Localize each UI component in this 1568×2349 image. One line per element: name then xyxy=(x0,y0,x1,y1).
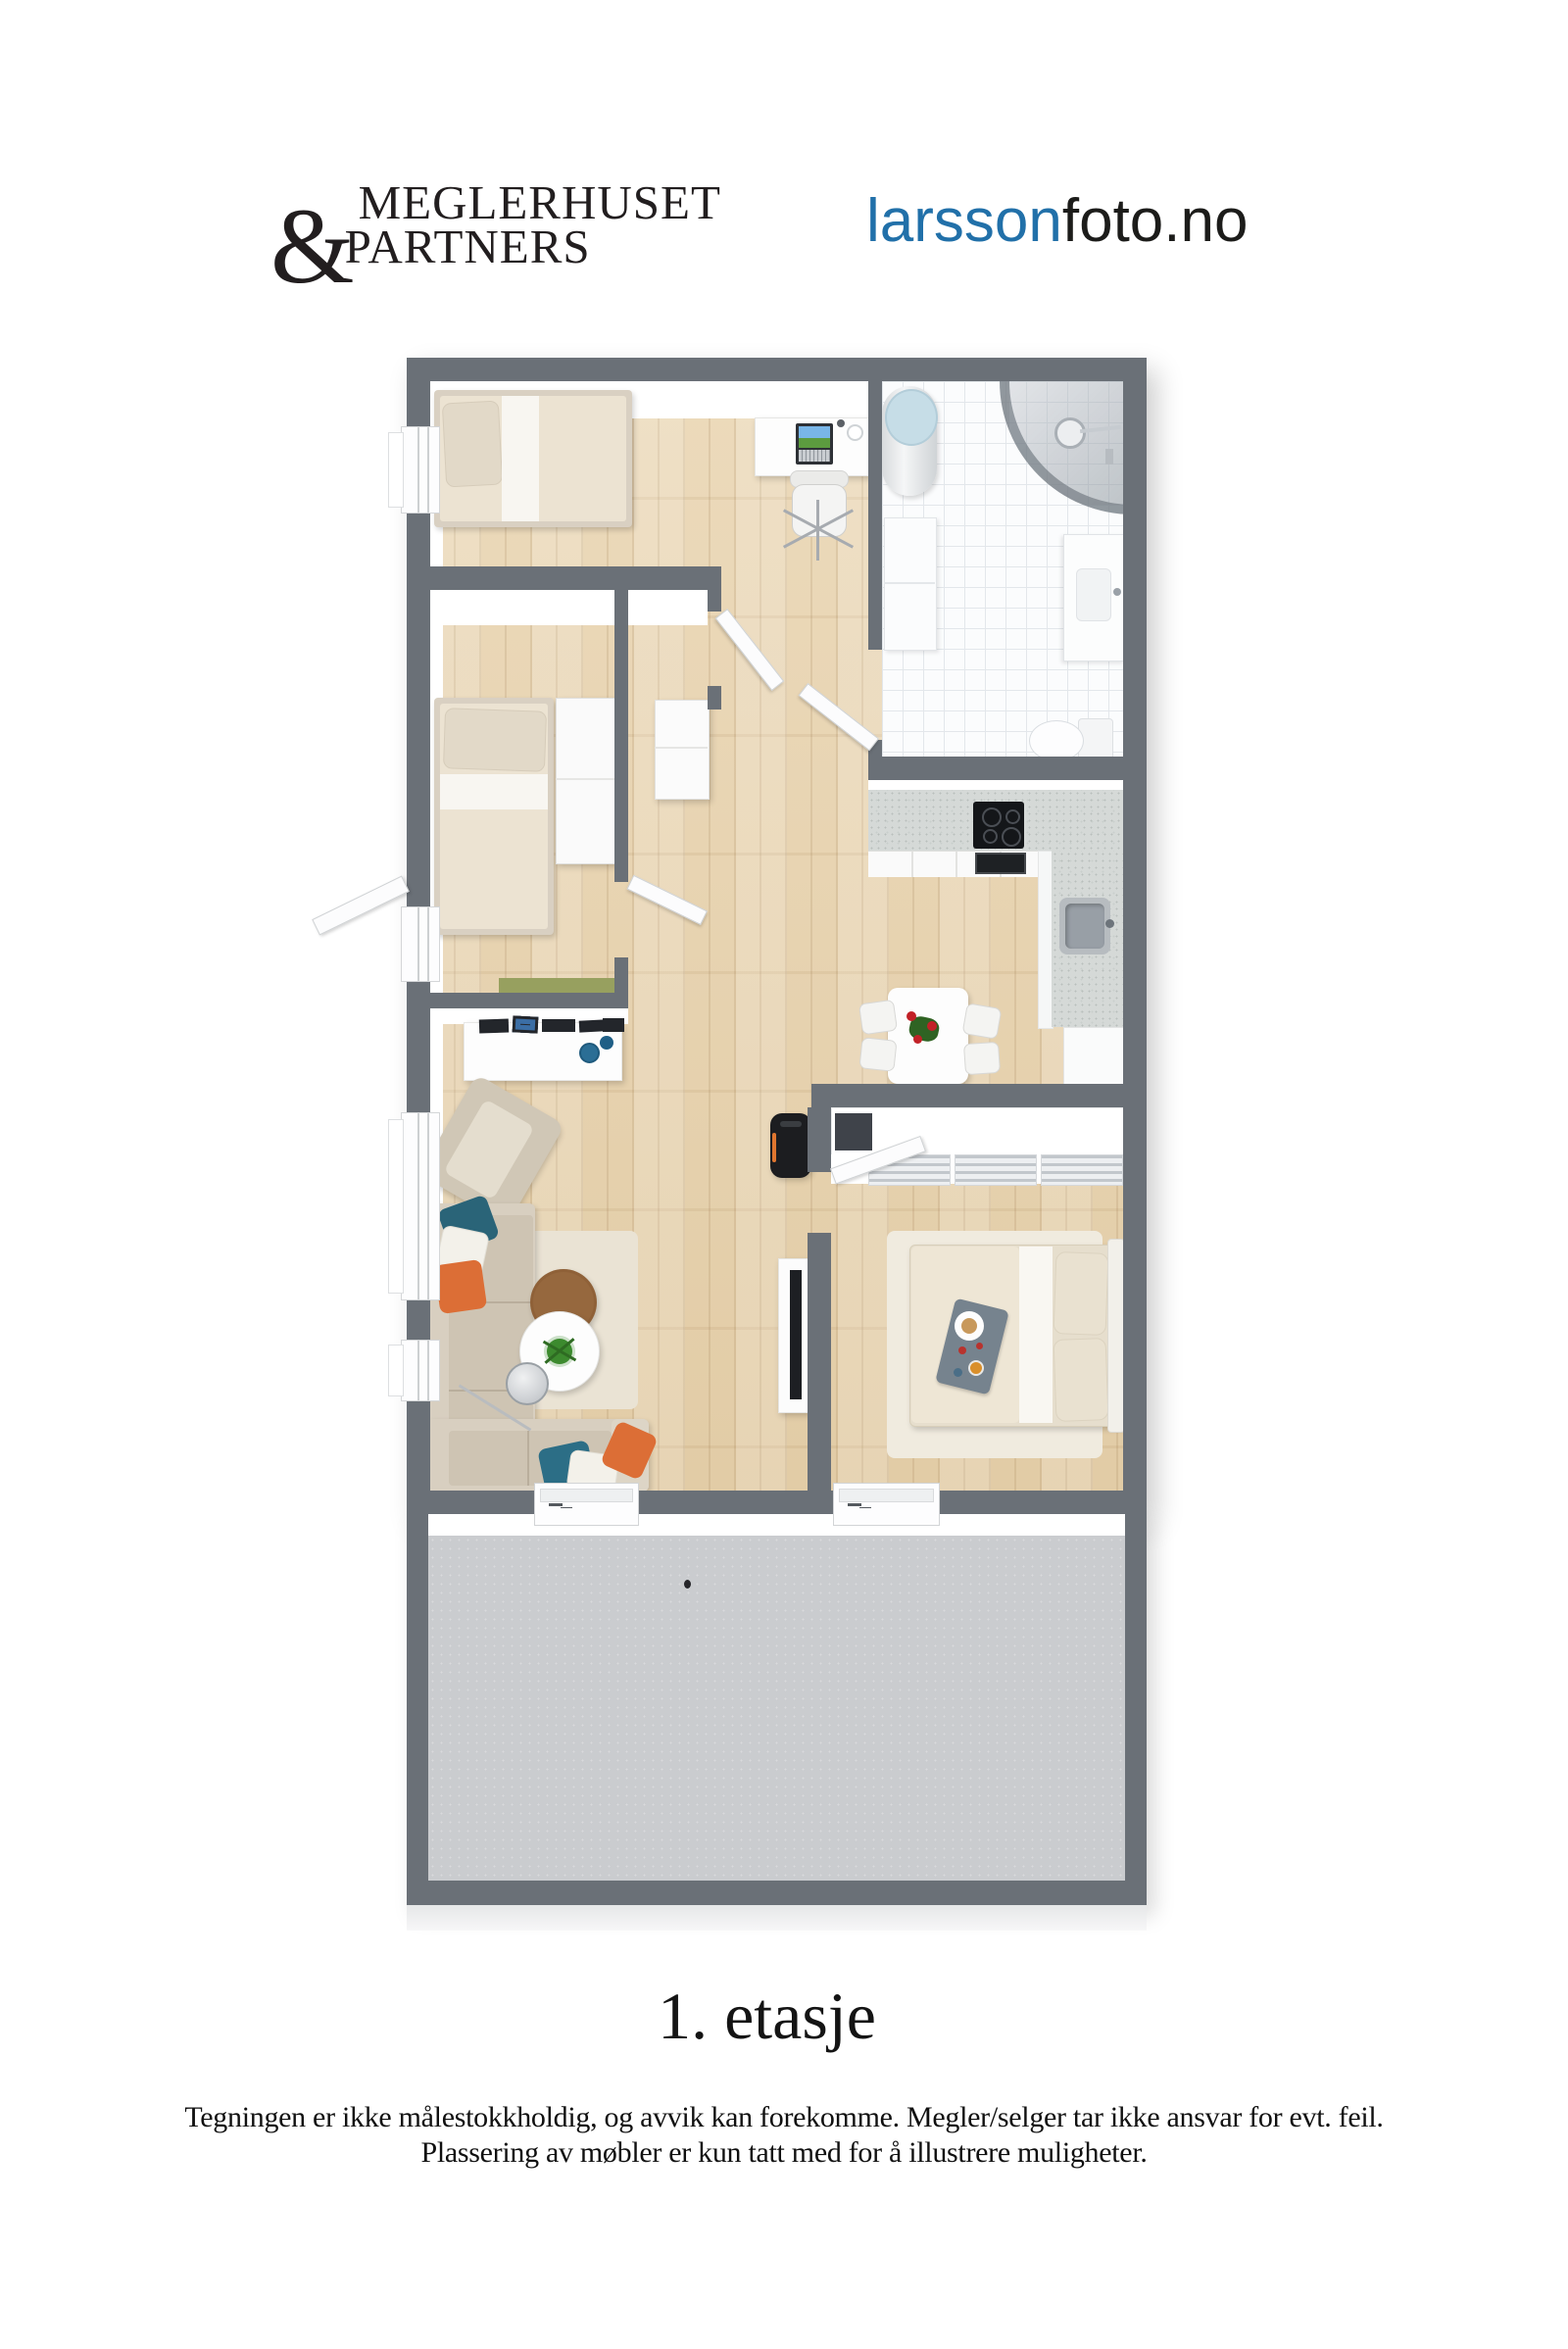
burner-2 xyxy=(1005,809,1020,824)
stove-vent xyxy=(780,1121,802,1127)
single-bed-2-pillow xyxy=(443,708,547,772)
dining-chair-3 xyxy=(961,1003,1002,1040)
terrace-door-master-glass xyxy=(839,1489,934,1502)
bedroom2-right-wall-stub xyxy=(614,957,628,995)
burner-3 xyxy=(983,829,998,844)
hall-closet-seam xyxy=(655,747,708,749)
terrace-door-living-glass xyxy=(540,1489,633,1502)
oven-slot xyxy=(975,853,1026,874)
disclaimer-line-2: Plassering av møbler er kun tatt med for… xyxy=(0,2136,1568,2170)
terrace-wall-bottom xyxy=(407,1881,1147,1905)
bedroom1-window xyxy=(401,426,440,514)
picture-frame-4 xyxy=(579,1019,606,1032)
green-bench xyxy=(499,978,614,993)
living-window-1 xyxy=(401,1112,440,1300)
single-bed-1-pillow xyxy=(442,401,503,488)
vanity-basin xyxy=(1076,568,1111,621)
closet-louvered-door-3 xyxy=(1041,1154,1123,1186)
vanity-faucet xyxy=(1113,588,1121,596)
floor-title: 1. etasje xyxy=(0,1978,1534,2055)
shower-valve xyxy=(1105,449,1113,465)
desk-mug xyxy=(847,424,863,441)
laptop-screen xyxy=(799,426,830,448)
tray-cup xyxy=(954,1368,962,1377)
entry-door-frame xyxy=(401,906,440,982)
single-bed-1-sheet xyxy=(502,396,539,521)
entry-door-leaf xyxy=(312,876,410,936)
laptop-keyboard xyxy=(799,450,830,462)
master-west-wall-top xyxy=(808,1107,831,1172)
picture-frame-1 xyxy=(479,1018,509,1033)
bedroom1-wall-face xyxy=(430,590,708,625)
terrace-door-living-handle xyxy=(549,1503,563,1506)
table-flower-red-3 xyxy=(913,1035,922,1044)
entry-bottom-wall xyxy=(407,993,628,1008)
burner-1 xyxy=(982,807,1002,827)
tray-berry-1 xyxy=(958,1346,966,1354)
terrace-floor xyxy=(428,1536,1125,1881)
terrace-top-face xyxy=(418,1514,1136,1536)
hall-wall-stub-bottom xyxy=(708,686,721,710)
burner-4 xyxy=(1002,827,1021,847)
tray-croissant xyxy=(961,1318,977,1334)
tray-berry-2 xyxy=(976,1343,983,1349)
outer-wall-right xyxy=(1123,381,1147,1514)
double-bed-pillow-1 xyxy=(1053,1251,1109,1336)
sink-faucet xyxy=(1105,919,1114,928)
double-bed-sheet-band xyxy=(1019,1247,1053,1423)
water-heater-top xyxy=(885,389,938,446)
living-window-1-sill xyxy=(388,1119,404,1294)
tv-screen xyxy=(790,1270,802,1399)
picture-frame-2 xyxy=(513,1015,539,1033)
stove-fire-glow xyxy=(772,1133,776,1162)
hall-closet xyxy=(655,700,710,800)
terrace-wall-right xyxy=(1125,1514,1147,1905)
dining-chair-1 xyxy=(858,1000,898,1036)
disclaimer-line-1: Tegningen er ikke målestokkholdig, og av… xyxy=(0,2101,1568,2134)
terrace-small-object xyxy=(684,1580,691,1589)
terrace-door-master-handle xyxy=(848,1503,861,1506)
living-window-2 xyxy=(401,1340,440,1401)
bathroom-bottom-wall xyxy=(868,757,1147,780)
double-bed-pillow-2 xyxy=(1053,1338,1109,1422)
wardrobe-seam xyxy=(556,778,614,780)
kitchen-tall-cabinet xyxy=(1063,1027,1125,1086)
office-chair-legs-3 xyxy=(816,500,819,561)
kitchen-sink-bowl xyxy=(1065,904,1104,949)
bedroom2-wardrobe xyxy=(556,698,616,864)
terrace-fascia xyxy=(407,1905,1147,1931)
bedroom1-window-sill xyxy=(388,432,404,508)
closet-louvered-door-2 xyxy=(955,1154,1037,1186)
toilet-bowl xyxy=(1029,720,1084,761)
picture-frame-3 xyxy=(542,1019,575,1032)
floorplan-3d-render xyxy=(0,0,1568,1960)
blue-decor-box-2 xyxy=(600,1036,613,1050)
single-bed-2-sheet xyxy=(440,774,548,809)
floor-lamp-shade xyxy=(506,1362,549,1405)
dining-chair-2 xyxy=(858,1037,897,1072)
master-west-wall xyxy=(808,1233,831,1491)
bathroom-left-wall xyxy=(868,381,882,650)
table-flower-red-1 xyxy=(906,1011,916,1021)
master-closet-interior xyxy=(831,1107,1125,1156)
tray-juice xyxy=(968,1360,984,1376)
bathroom-cabinet-washer xyxy=(884,517,937,651)
outer-wall-bottom xyxy=(407,1491,1147,1514)
dining-chair-4 xyxy=(963,1042,1001,1075)
terrace-wall-left xyxy=(407,1514,428,1905)
bedroom2-right-wall xyxy=(614,590,628,882)
living-window-2-sill xyxy=(388,1345,404,1396)
cabinet-seam xyxy=(884,582,935,584)
sofa-pillow-orange-top xyxy=(434,1259,487,1314)
kitchen-bottom-wall xyxy=(811,1084,1147,1107)
desk-speaker xyxy=(837,419,845,427)
blue-decor-box-1 xyxy=(579,1043,600,1063)
master-closet-open-nook xyxy=(835,1113,872,1150)
outer-wall-top xyxy=(407,358,1147,381)
picture-frame-5 xyxy=(603,1018,624,1032)
hall-wall-stub-top xyxy=(708,566,721,612)
bedroom1-bottom-wall xyxy=(407,566,721,590)
page: & MEGLERHUSET PARTNERS larssonfoto.no xyxy=(0,0,1568,2349)
table-flower-red-2 xyxy=(927,1021,937,1031)
